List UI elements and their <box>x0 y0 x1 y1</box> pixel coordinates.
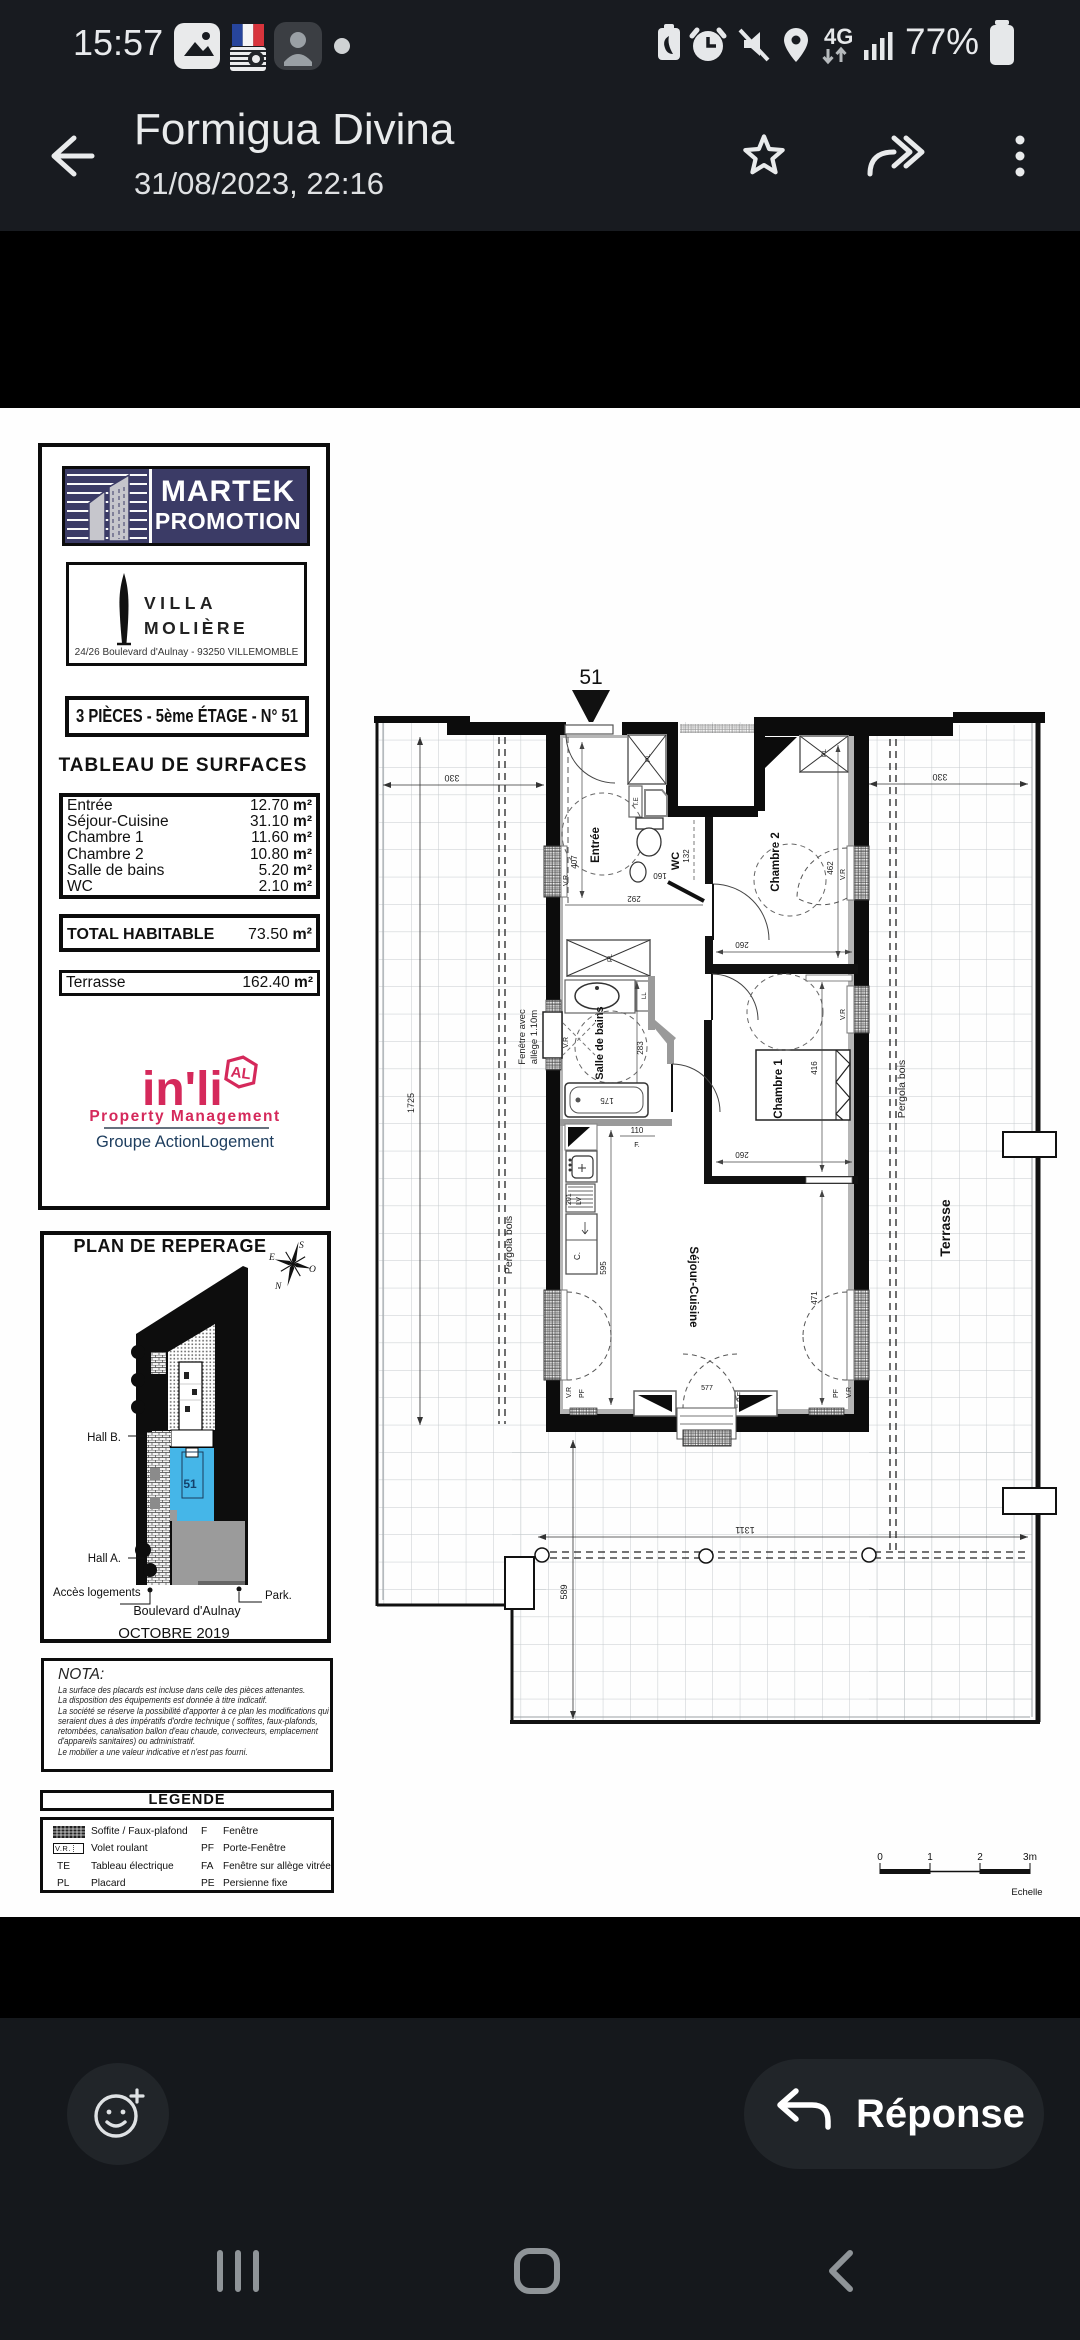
svg-text:V.R: V.R <box>840 869 847 880</box>
svg-text:allège 1.10m: allège 1.10m <box>529 1010 540 1064</box>
svg-text:330: 330 <box>444 773 459 783</box>
svg-text:Boulevard d'Aulnay: Boulevard d'Aulnay <box>133 1604 241 1618</box>
svg-text:PL: PL <box>645 754 652 762</box>
svg-text:V.R: V.R <box>563 1037 570 1048</box>
svg-text:PF: PF <box>833 1389 840 1398</box>
svg-text:201: 201 <box>566 1193 573 1205</box>
svg-text:C.: C. <box>573 1252 582 1260</box>
svg-text:471: 471 <box>810 1291 819 1305</box>
svg-text:2: 2 <box>977 1852 983 1863</box>
svg-text:F.: F. <box>634 1142 640 1149</box>
svg-text:330: 330 <box>932 772 947 782</box>
svg-text:V.R: V.R <box>566 1387 573 1398</box>
svg-text:407: 407 <box>570 855 579 869</box>
svg-text:595: 595 <box>599 1261 608 1275</box>
svg-text:P.F: P.F <box>737 1392 744 1402</box>
svg-text:O: O <box>309 1265 316 1275</box>
svg-text:132: 132 <box>682 849 691 863</box>
svg-text:Hall A.: Hall A. <box>88 1553 121 1565</box>
svg-text:577: 577 <box>701 1385 713 1392</box>
svg-text:Hall B.: Hall B. <box>87 1432 121 1444</box>
svg-text:Accès logements: Accès logements <box>53 1587 141 1599</box>
svg-text:416: 416 <box>810 1061 819 1075</box>
svg-text:OCTOBRE 2019: OCTOBRE 2019 <box>118 1625 229 1642</box>
svg-text:110: 110 <box>631 1126 644 1135</box>
svg-text:Chambre 2: Chambre 2 <box>770 832 782 891</box>
svg-text:260: 260 <box>735 1150 749 1159</box>
svg-text:T.E: T.E <box>634 797 640 806</box>
svg-text:PF: PF <box>579 1389 586 1398</box>
svg-text:283: 283 <box>636 1041 645 1055</box>
svg-text:Terrasse: Terrasse <box>937 1199 953 1257</box>
svg-text:Séjour-Cuisine: Séjour-Cuisine <box>687 1246 699 1327</box>
svg-text:1725: 1725 <box>406 1093 416 1113</box>
svg-text:Park.: Park. <box>265 1590 292 1602</box>
svg-text:4G: 4G <box>824 24 853 49</box>
svg-text:LL: LL <box>642 992 648 999</box>
svg-text:Chambre 1: Chambre 1 <box>773 1059 785 1119</box>
svg-text:3m: 3m <box>1023 1852 1037 1863</box>
svg-text:N: N <box>274 1282 282 1292</box>
svg-text:V.R: V.R <box>840 1009 847 1020</box>
svg-text:Fenêtre avec: Fenêtre avec <box>517 1009 528 1065</box>
svg-text:589: 589 <box>559 1584 569 1599</box>
svg-text:160: 160 <box>653 871 667 880</box>
svg-text:Pergola bois: Pergola bois <box>896 1060 908 1118</box>
svg-text:PL: PL <box>607 954 614 962</box>
svg-text:462: 462 <box>826 861 835 875</box>
svg-text:V.R: V.R <box>846 1387 853 1398</box>
svg-text:51: 51 <box>579 666 602 689</box>
svg-text:S: S <box>299 1241 304 1251</box>
svg-text:292: 292 <box>627 894 641 903</box>
svg-text:51: 51 <box>183 1477 197 1491</box>
svg-text:0: 0 <box>877 1852 883 1863</box>
svg-text:1: 1 <box>927 1852 933 1863</box>
svg-text:PL: PL <box>821 749 828 757</box>
svg-text:Salle de bains: Salle de bains <box>594 1006 606 1079</box>
svg-text:Entrée: Entrée <box>590 827 602 863</box>
svg-text:Pergola bois: Pergola bois <box>503 1216 515 1274</box>
svg-text:LV: LV <box>576 1197 583 1205</box>
svg-text:175: 175 <box>600 1096 614 1105</box>
svg-text:WC: WC <box>670 852 682 870</box>
svg-text:1311: 1311 <box>735 1525 754 1535</box>
svg-text:Echelle: Echelle <box>1011 1887 1042 1898</box>
svg-text:E: E <box>268 1253 275 1263</box>
svg-text:V.R: V.R <box>563 875 570 886</box>
svg-text:260: 260 <box>735 940 749 949</box>
